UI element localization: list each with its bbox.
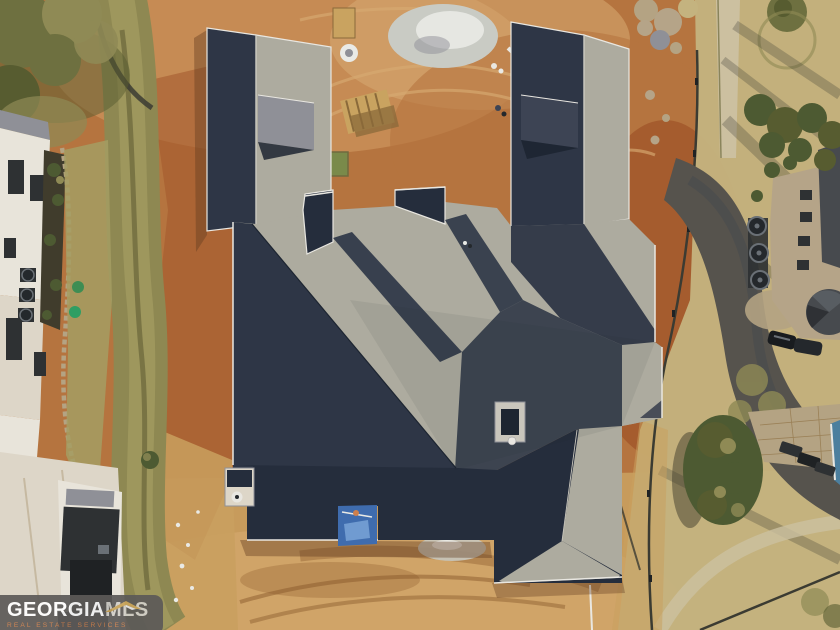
chimney-flue <box>501 409 519 435</box>
house-shadow-left <box>194 30 207 252</box>
bucket-lid <box>345 49 353 57</box>
small-tree <box>141 451 159 469</box>
main-roof-body <box>233 187 662 583</box>
green-trays <box>330 152 348 176</box>
washout-shade <box>414 36 450 54</box>
bumpout-vent-center <box>235 495 239 499</box>
watermark-georgia: GEORGIA <box>7 600 105 620</box>
utility-lid <box>72 281 84 293</box>
tree <box>74 20 118 64</box>
right-wing-light-slope <box>584 35 629 226</box>
tarp-red-item <box>353 510 359 516</box>
hvac-units-left <box>18 268 36 322</box>
watermark-tagline: REAL ESTATE SERVICES <box>7 622 149 629</box>
blue-tarp <box>338 505 377 546</box>
chimney-cap <box>508 437 516 445</box>
small-tree-highlight <box>143 453 151 461</box>
left-wing-dark-slope <box>207 28 256 231</box>
fireplace-bumpout <box>225 468 254 506</box>
bumpout-roof <box>227 470 252 487</box>
left-wing-dormer-panel <box>258 95 314 150</box>
aerial-photo: GEORGIAMLS REAL ESTATE SERVICES <box>0 0 840 630</box>
hvac-units-right <box>748 217 769 289</box>
tree <box>29 34 81 86</box>
shrub-highlight <box>56 176 64 184</box>
chimney <box>495 402 525 445</box>
pallet <box>333 8 355 38</box>
gray-roof <box>66 489 115 507</box>
aerial-scene-svg <box>0 0 840 630</box>
watermark-badge: GEORGIAMLS REAL ESTATE SERVICES <box>0 595 163 630</box>
right-wing-dormer-panel <box>521 95 578 148</box>
roof-swoosh-icon <box>105 600 143 612</box>
watermark-mls: MLS <box>105 600 149 620</box>
roof-vent <box>98 545 109 554</box>
utility-lid <box>69 306 81 318</box>
right-wing-roof <box>511 22 629 231</box>
watermark-brand: GEORGIAMLS <box>7 600 149 620</box>
gable-one-dark <box>303 190 333 254</box>
